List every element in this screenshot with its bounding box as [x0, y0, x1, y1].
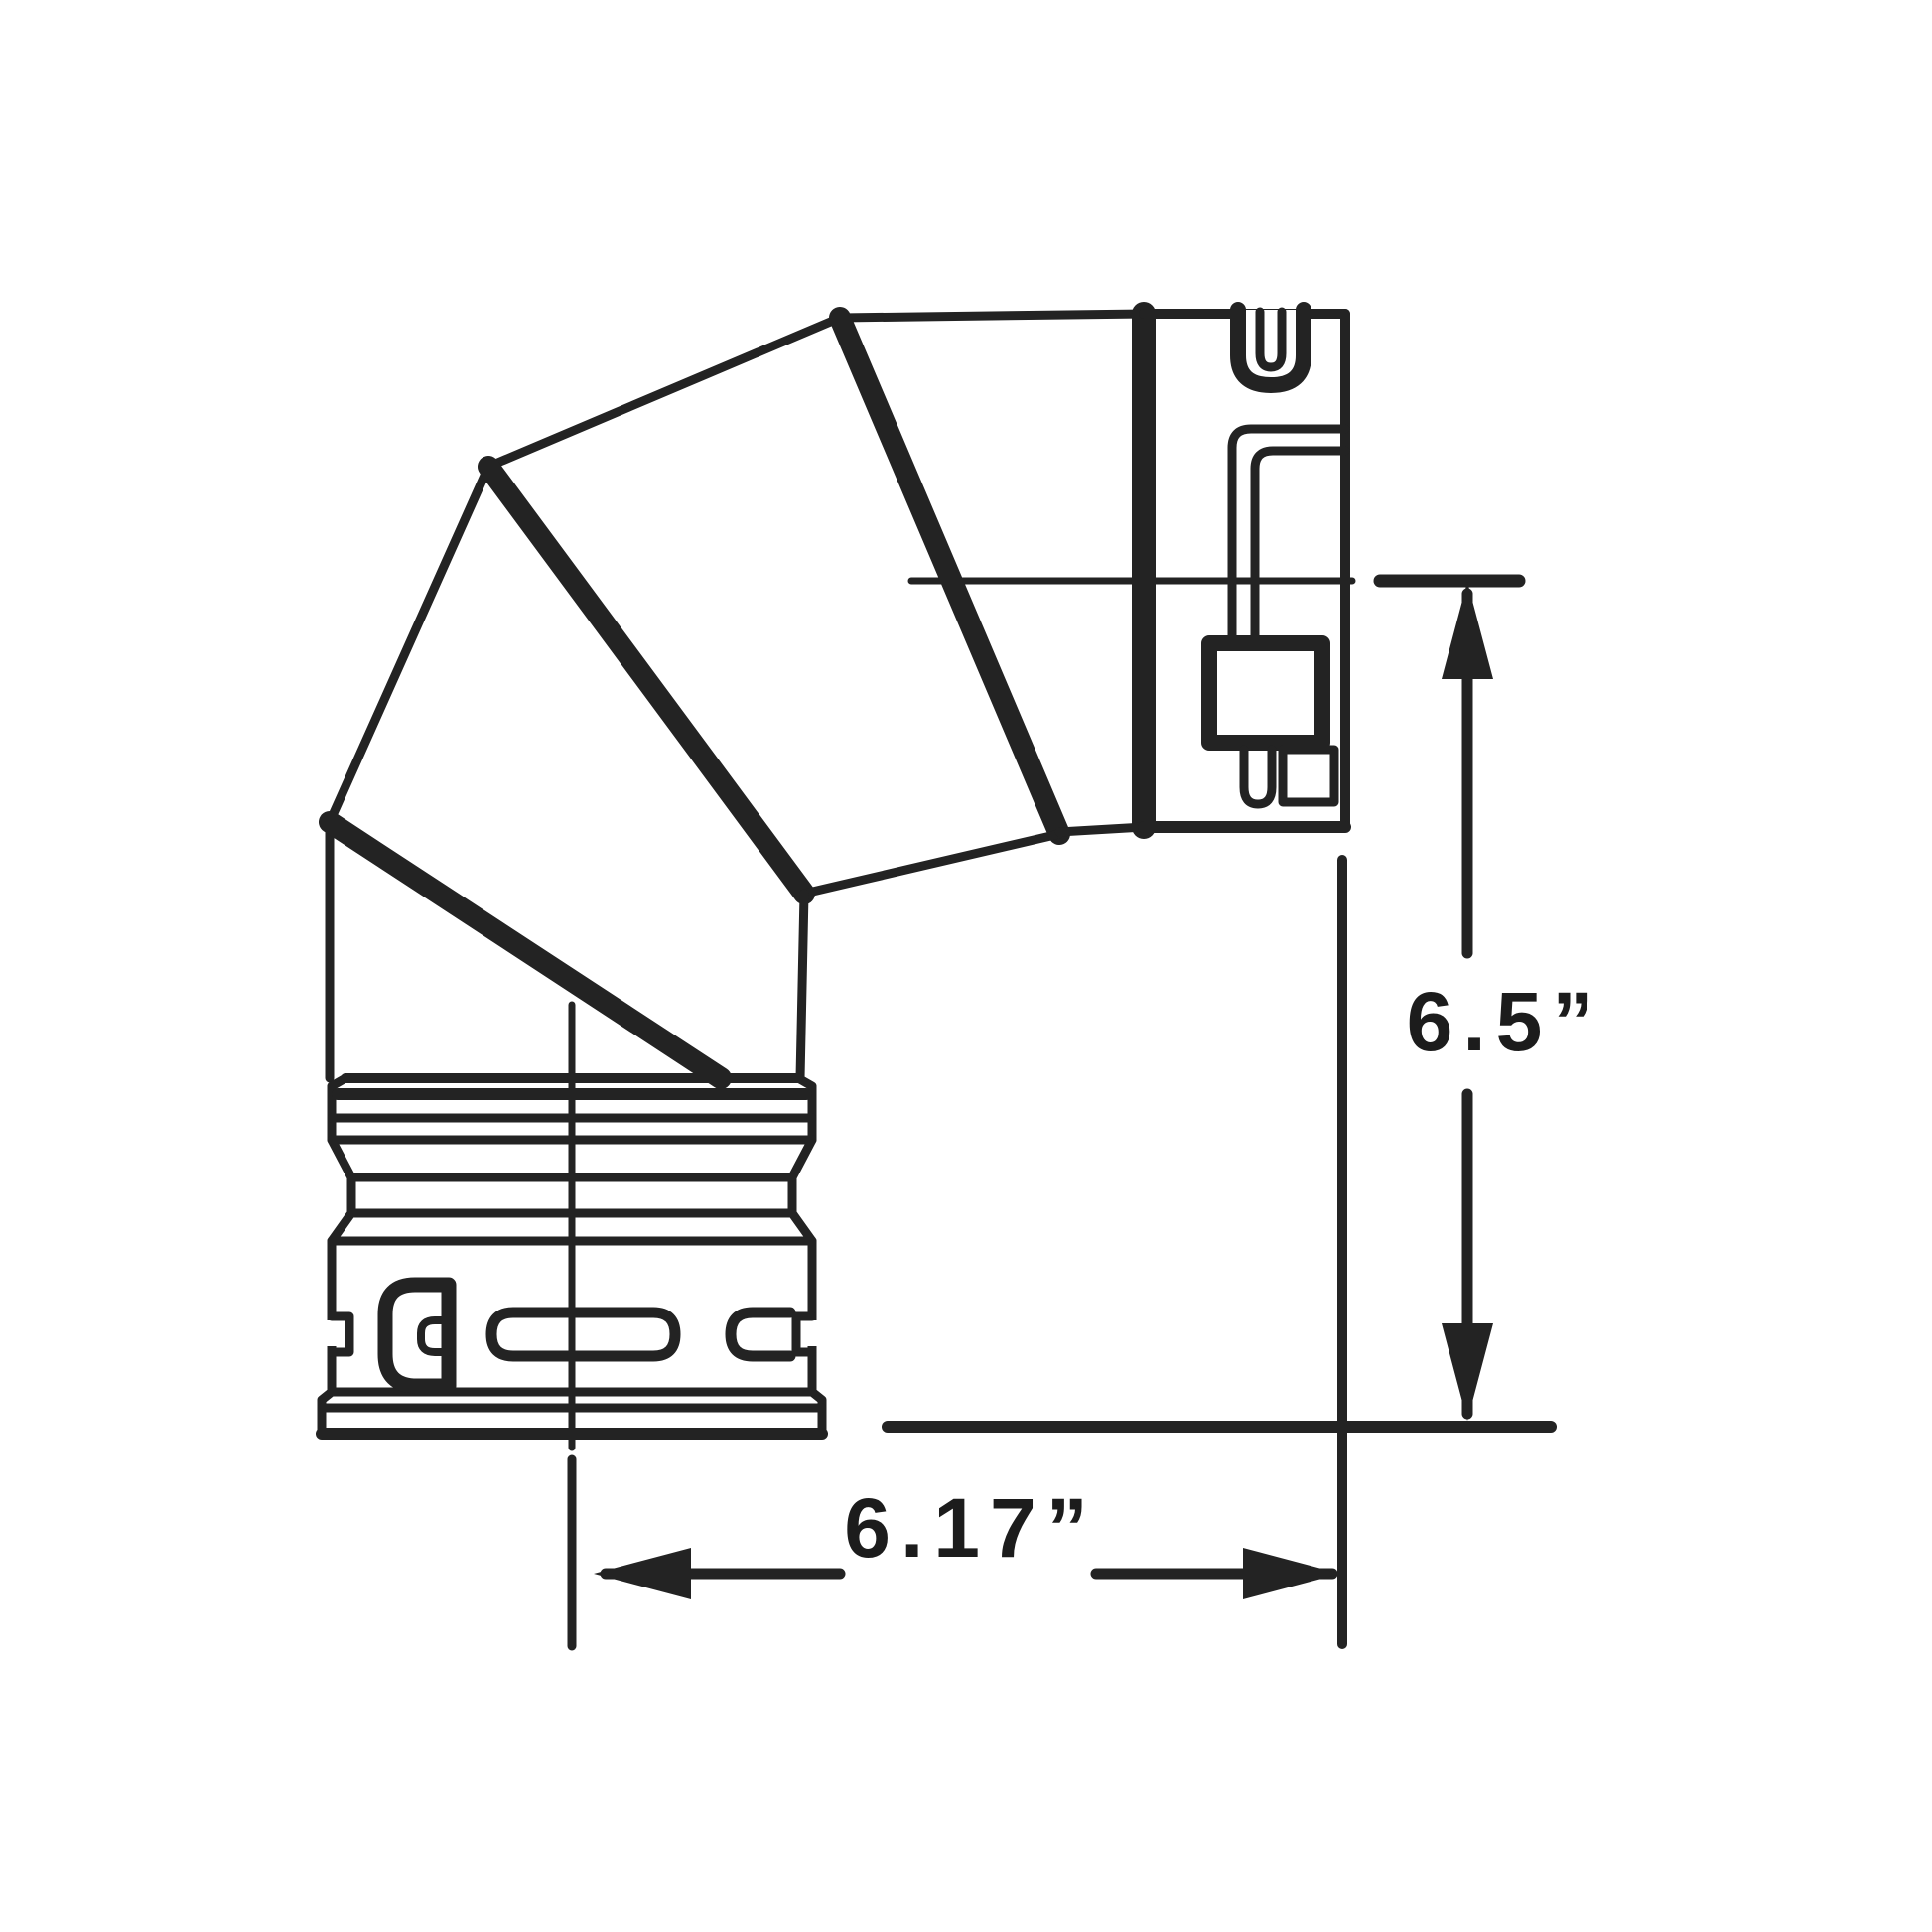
- right-notch-mask: [806, 1320, 820, 1346]
- drawing-canvas: 6.5” 6.17”: [0, 0, 1932, 1932]
- segment4-bottom-edge: [1059, 827, 1144, 832]
- lock-channel-inner: [1255, 451, 1345, 643]
- elbow-technical-drawing: 6.5” 6.17”: [0, 0, 1932, 1932]
- left-notch-mask: [324, 1320, 338, 1346]
- vertical-dim-label: 6.5”: [1407, 975, 1604, 1068]
- oval-slot: [491, 1312, 675, 1356]
- seam-segment3-segment4: [840, 318, 1059, 834]
- arrow-up: [1442, 582, 1493, 679]
- twist-lock-notch: [1238, 310, 1304, 385]
- connector-step-detail: [1283, 750, 1334, 802]
- outlet-connector: [1144, 310, 1345, 827]
- horizontal-dim-label: 6.17”: [844, 1481, 1098, 1575]
- arrow-left: [594, 1548, 691, 1599]
- slot-below-lug: [1244, 750, 1272, 804]
- lock-channel-outer: [1232, 429, 1345, 643]
- inner-edge-segment3: [804, 834, 1059, 894]
- arrow-down: [1442, 1323, 1493, 1421]
- seam-segment1-segment2: [330, 822, 721, 1078]
- collar-profile-right: [792, 1078, 822, 1434]
- outer-outline: [330, 314, 1144, 1078]
- collar-profile-left: [322, 1078, 351, 1434]
- elbow-body: [330, 314, 1144, 1078]
- seam-segment2-segment3: [488, 467, 804, 894]
- dimension-horizontal: 6.17”: [594, 860, 1342, 1644]
- lock-lug: [1209, 643, 1322, 743]
- inner-edge-right: [800, 894, 804, 1078]
- c-slot: [731, 1312, 790, 1356]
- arrow-right: [1243, 1548, 1340, 1599]
